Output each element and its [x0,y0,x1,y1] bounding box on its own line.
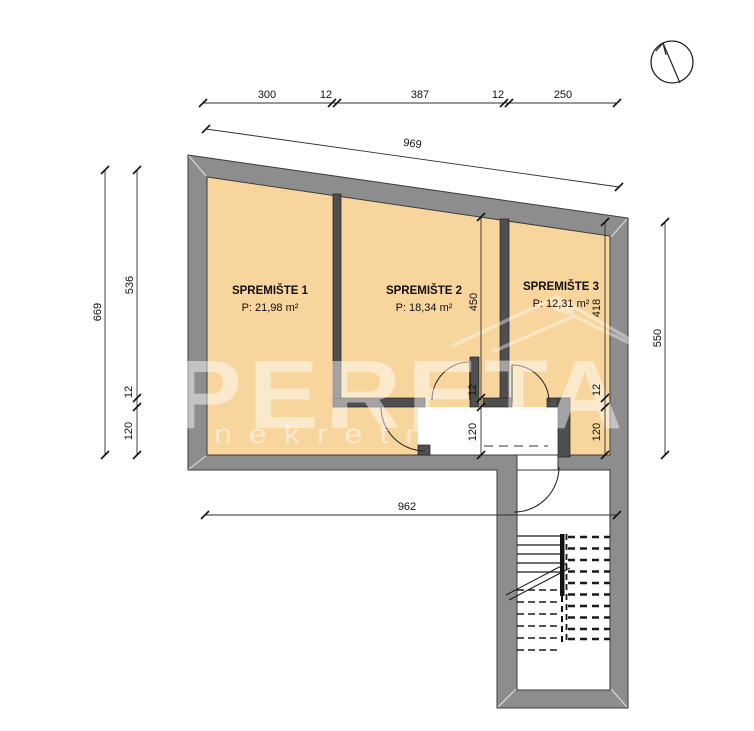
floor-plan-svg: OPERETA nekretnine SPREMIŠTE 1 P: 21,98 … [0,0,754,731]
room2-name: SPREMIŠTE 2 [386,284,462,297]
dim-left-120: 120 [123,422,135,440]
dim-room2-120: 120 [467,423,479,441]
watermark-subtitle: nekretnine [214,419,534,449]
room1-name: SPREMIŠTE 1 [232,284,309,297]
stair-treads-dashed-left [517,590,561,650]
dim-669: 669 [92,303,104,321]
dim-top-387: 387 [411,89,429,101]
dim-top-12a: 12 [320,89,332,101]
dim-450: 450 [468,293,480,311]
room2-area: P: 18,34 m² [396,302,453,314]
dim-top-12b: 12 [492,89,504,101]
room3-name: SPREMIŠTE 3 [523,280,599,293]
dim-room3-120: 120 [591,423,603,441]
dim-962: 962 [398,501,416,513]
room1-area: P: 21,98 m² [242,302,299,314]
dim-top-300: 300 [258,89,276,101]
dim-left-12: 12 [123,386,135,398]
staircase [506,534,610,650]
dim-418: 418 [591,299,603,317]
door-arc-stairs [514,467,559,512]
north-arrow-icon [651,41,693,83]
stair-treads-solid [517,536,561,572]
dim-536: 536 [124,276,136,294]
dim-top-250: 250 [554,89,572,101]
dim-550: 550 [652,329,664,347]
stair-treads-dashed-right [568,537,610,639]
dim-room2-12: 12 [467,384,479,396]
dim-969: 969 [402,137,422,151]
room3-area: P: 12,31 m² [533,298,590,310]
dim-room3-12: 12 [591,384,603,396]
